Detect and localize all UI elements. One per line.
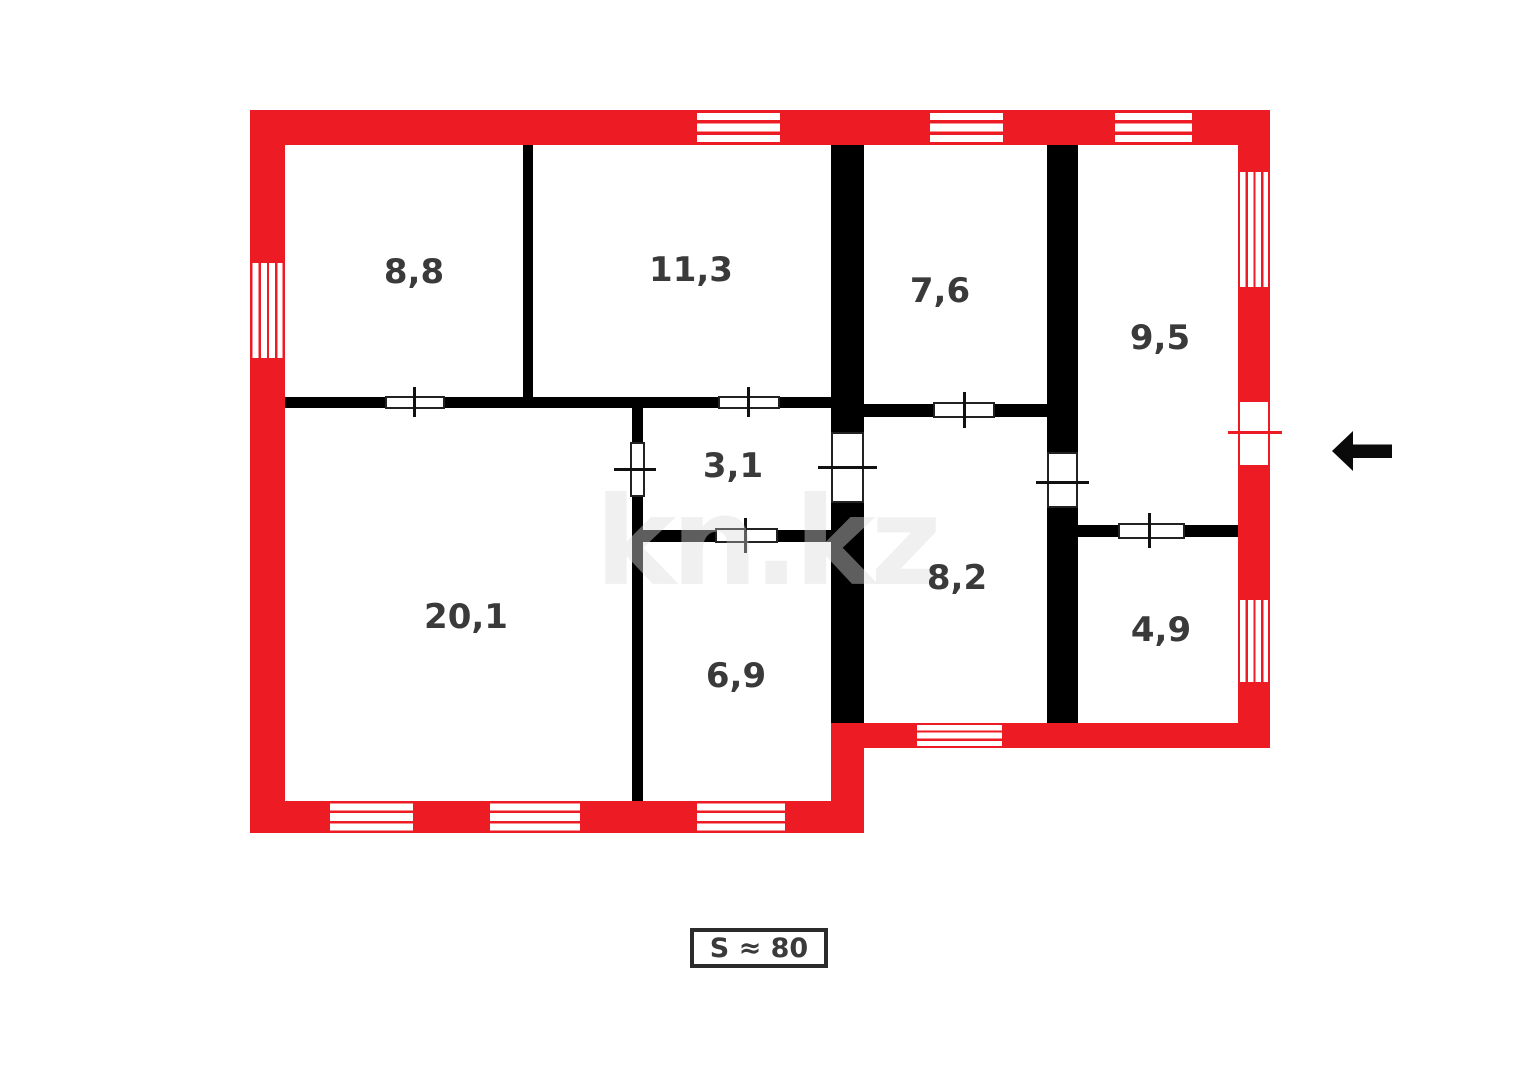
door-opening-4-9 [1118, 523, 1185, 539]
total-area-label: S ≈ 80 [710, 933, 808, 964]
room-label-7-6: 7,6 [880, 270, 1000, 312]
door-tick-8-8 [413, 387, 416, 417]
door-tick-4-9 [1148, 513, 1151, 548]
total-area-badge: S ≈ 80 [690, 928, 828, 968]
window-top-1 [697, 110, 780, 145]
outer-wall-left [250, 110, 285, 833]
room-label-11-3: 11,3 [631, 249, 751, 291]
room-label-6-9: 6,9 [676, 655, 796, 697]
door-tick-7-6 [963, 392, 966, 428]
outer-wall-step [831, 723, 864, 833]
window-bottom-2 [490, 801, 580, 833]
door-tick-3-1-8-2 [818, 466, 877, 469]
door-opening-8-2-9-5 [1047, 452, 1078, 508]
window-left-1 [250, 263, 285, 358]
entrance-door-tick [1228, 431, 1282, 434]
door-tick-8-2-9-5 [1036, 481, 1089, 484]
room-label-4-9: 4,9 [1101, 609, 1221, 651]
window-right-1 [1238, 172, 1270, 287]
window-top-2 [930, 110, 1003, 145]
room-label-8-2: 8,2 [897, 557, 1017, 599]
door-tick-6-9 [744, 518, 747, 553]
window-bottom-1 [330, 801, 413, 833]
room-label-8-8: 8,8 [354, 251, 474, 293]
floor-plan: kn.kz kn.kz 8,8 11,3 7,6 9,5 3,1 20,1 6,… [0, 0, 1516, 1080]
window-top-3 [1115, 110, 1192, 145]
room-label-20-1: 20,1 [406, 596, 526, 638]
door-tick-11-3 [747, 387, 750, 417]
room-label-9-5: 9,5 [1100, 317, 1220, 359]
entrance-arrow-icon [1325, 424, 1397, 478]
outer-wall-bottom-right [831, 723, 1270, 748]
window-right-2 [1238, 600, 1270, 682]
window-bottom-right-1 [917, 723, 1002, 748]
room-label-3-1: 3,1 [673, 445, 793, 487]
inner-wall-8-8-11-3 [523, 145, 533, 397]
inner-wall-right-thick [1047, 145, 1078, 723]
door-tick-20-1 [614, 468, 656, 471]
window-bottom-3 [697, 801, 785, 833]
